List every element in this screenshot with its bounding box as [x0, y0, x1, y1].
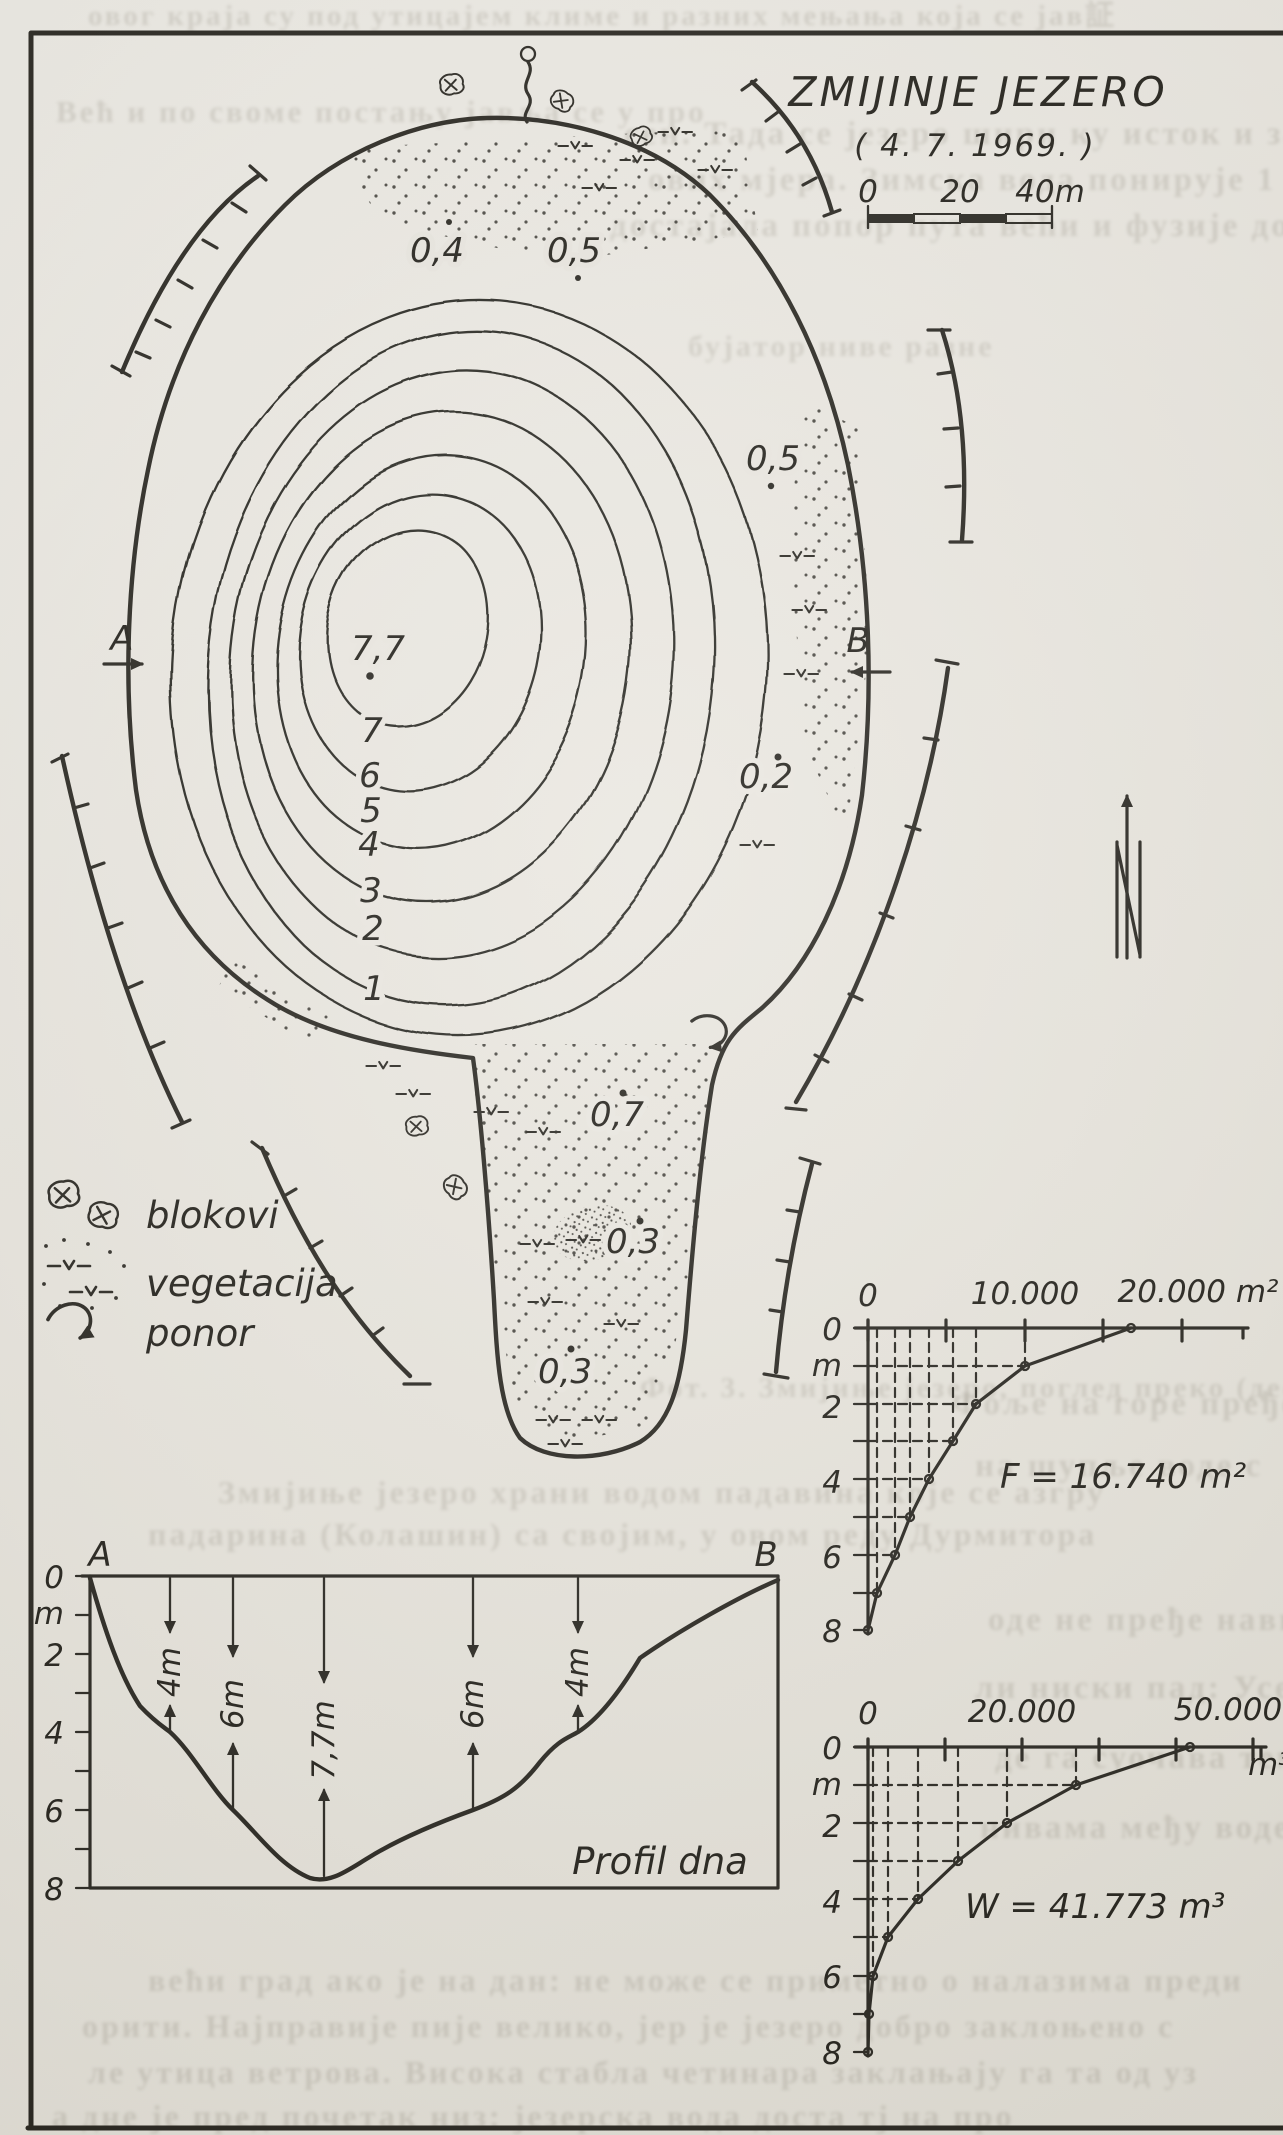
depth-contours [140, 275, 798, 1060]
volume-y-tick: 0 [822, 1731, 842, 1767]
area-x-tick: 10.000 [971, 1276, 1079, 1312]
scale-tick-20: 20 [940, 174, 979, 210]
north-arrow-icon [1117, 796, 1140, 958]
contour-label-3: 3 [360, 871, 382, 911]
scale-tick-0: 0 [858, 174, 878, 210]
max-depth-label: 7,7 [351, 629, 405, 669]
section-marker-a: A [104, 619, 142, 664]
area-y-tick: 6 [822, 1540, 842, 1576]
contour-label-6: 6 [359, 756, 381, 796]
contour-label-1: 1 [363, 969, 385, 1009]
profile-depth-label: 4m [560, 1647, 596, 1697]
volume-x-tick: 0 [858, 1696, 878, 1732]
area-y-tick: m [812, 1348, 842, 1384]
area-x-tick: 0 [858, 1278, 878, 1314]
area-y-tick: 2 [822, 1390, 842, 1426]
area-annotation: F = 16.740 m² [1000, 1457, 1247, 1497]
spot-depth: 0,3 [538, 1352, 592, 1392]
volume-x-tick: 20.000 [968, 1694, 1076, 1730]
profile-y-tick: 6 [44, 1794, 64, 1830]
spot-depth: 0,4 [410, 231, 464, 271]
volume-x-tick: 50.000 [1174, 1692, 1282, 1728]
map-date: ( 4. 7. 1969. ) [854, 128, 1096, 164]
spot-depth: 0,3 [606, 1222, 660, 1262]
profile-y-tick: m [34, 1596, 64, 1632]
area-y-tick: 8 [822, 1614, 842, 1650]
scanned-page: овог краја су под утицајем климе и разни… [0, 0, 1283, 2135]
area-x-tick: 20.000 m² [1118, 1274, 1279, 1310]
figure-drawing: ZMIJINJE JEZERO ( 4. 7. 1969. ) 0 20 40m [0, 0, 1283, 2135]
spot-depth: 0,5 [547, 231, 601, 271]
contour-label-7: 7 [361, 711, 383, 751]
volume-graph: 0 20.000 50.000 m³ 0 m 2 4 6 8 W = 41.77… [812, 1692, 1283, 2072]
profile-a-label: A [86, 1535, 111, 1575]
bottom-profile: A B 0 m 2 4 6 8 4m 6m 7,7m [34, 1535, 778, 1908]
volume-y-tick: 2 [822, 1809, 842, 1845]
volume-y-tick: 4 [822, 1885, 842, 1921]
spring-icon [521, 47, 535, 61]
profile-b-label: B [754, 1535, 777, 1575]
profile-curve [90, 1578, 778, 1879]
max-depth-point [366, 672, 374, 680]
spot-depth: 0,2 [739, 757, 793, 797]
map-title: ZMIJINJE JEZERO [787, 68, 1167, 116]
profile-depth-label: 4m [152, 1647, 188, 1697]
map-legend: blokovi vegetacija ponor [42, 1181, 338, 1355]
profile-y-tick: 2 [44, 1638, 64, 1674]
area-graph: 0 10.000 20.000 m² 0 m 2 4 6 8 F = 16.74… [812, 1274, 1279, 1650]
profile-depth-label: 7,7m [306, 1700, 342, 1780]
contour-labels: 7 6 5 4 3 2 1 [358, 711, 385, 1009]
volume-y-tick: m [812, 1767, 842, 1803]
profile-depth-label: 6m [455, 1679, 491, 1729]
profile-depth-arrows: 4m 6m 7,7m 6m 4m [152, 1578, 596, 1876]
section-a-label: A [108, 619, 133, 659]
volume-y-tick: 8 [822, 2036, 842, 2072]
legend-label-vegetacija: vegetacija [146, 1262, 338, 1305]
area-y-tick: 4 [822, 1465, 842, 1501]
legend-label-ponor: ponor [145, 1312, 256, 1355]
legend-label-blokovi: blokovi [146, 1194, 279, 1237]
volume-y-tick: 6 [822, 1960, 842, 1996]
profile-y-tick: 8 [44, 1872, 64, 1908]
spot-depth: 0,7 [590, 1095, 644, 1135]
volume-annotation: W = 41.773 m³ [965, 1887, 1225, 1927]
contour-label-4: 4 [358, 825, 380, 865]
spot-depth: 0,5 [746, 439, 800, 479]
section-b-label: B [846, 621, 869, 661]
profile-y-tick: 4 [44, 1716, 64, 1752]
inflow-stream [525, 62, 530, 122]
profile-y-tick: 0 [44, 1560, 64, 1596]
profile-caption: Profil dna [572, 1840, 748, 1883]
scale-bar: 0 20 40m [858, 174, 1085, 228]
profile-depth-label: 6m [215, 1679, 251, 1729]
area-y-tick: 0 [822, 1312, 842, 1348]
contour-label-2: 2 [362, 909, 384, 949]
scale-tick-40: 40m [1015, 174, 1085, 210]
